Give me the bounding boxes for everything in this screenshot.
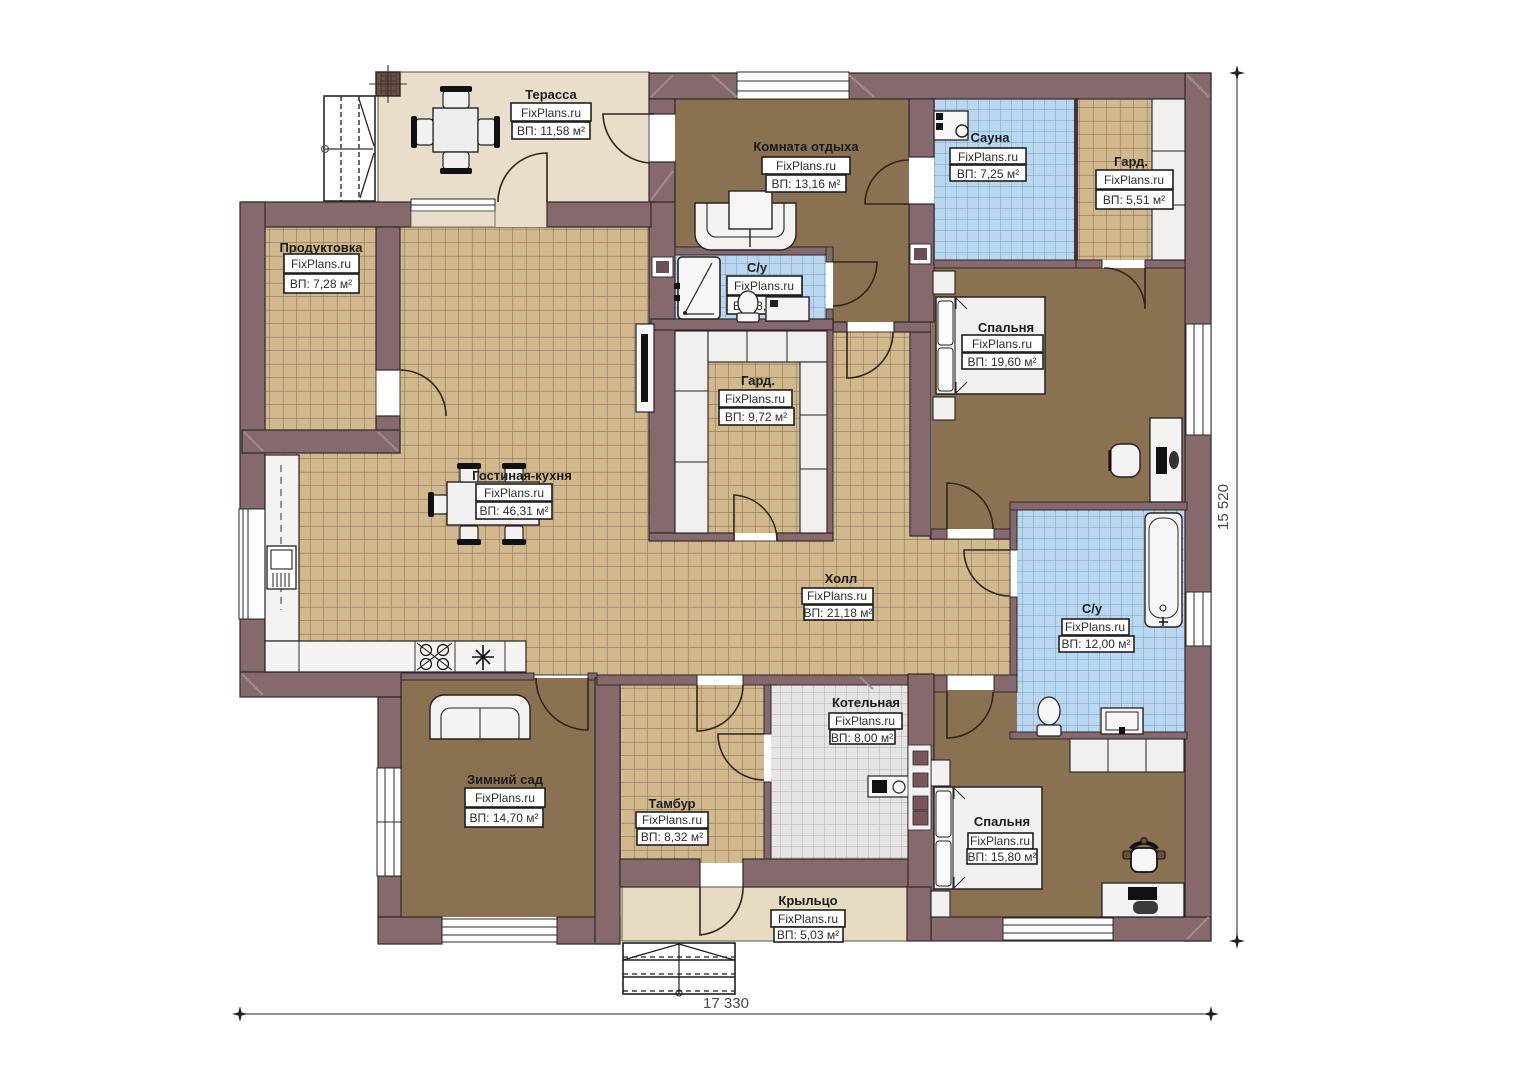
svg-text:FixPlans.ru: FixPlans.ru — [484, 486, 544, 500]
svg-text:FixPlans.ru: FixPlans.ru — [807, 589, 867, 603]
svg-text:Комната отдыха: Комната отдыха — [753, 139, 859, 154]
svg-text:FixPlans.ru: FixPlans.ru — [970, 834, 1030, 848]
svg-text:ВП: 46,31 м²: ВП: 46,31 м² — [480, 504, 549, 518]
svg-text:FixPlans.ru: FixPlans.ru — [734, 279, 794, 293]
svg-text:ВП: 8,00 м²: ВП: 8,00 м² — [831, 731, 893, 745]
svg-text:FixPlans.ru: FixPlans.ru — [1065, 620, 1125, 634]
svg-text:ВП: 7,25 м²: ВП: 7,25 м² — [957, 167, 1019, 181]
svg-text:С/у: С/у — [1082, 601, 1103, 616]
svg-text:Сауна: Сауна — [970, 130, 1010, 145]
svg-text:С/у: С/у — [747, 260, 768, 275]
svg-text:Котельная: Котельная — [832, 695, 900, 710]
svg-text:ВП: 19,60 м²: ВП: 19,60 м² — [968, 355, 1037, 369]
svg-text:ВП: 11,58 м²: ВП: 11,58 м² — [517, 124, 585, 138]
svg-text:Зимний сад: Зимний сад — [467, 772, 544, 787]
svg-text:FixPlans.ru: FixPlans.ru — [642, 813, 702, 827]
svg-text:ВП: 12,00 м²: ВП: 12,00 м² — [1062, 637, 1131, 651]
svg-text:FixPlans.ru: FixPlans.ru — [972, 337, 1032, 351]
svg-text:Спальня: Спальня — [974, 814, 1030, 829]
svg-text:FixPlans.ru: FixPlans.ru — [835, 714, 895, 728]
svg-text:FixPlans.ru: FixPlans.ru — [725, 392, 785, 406]
svg-text:15 520: 15 520 — [1215, 484, 1232, 530]
svg-text:Продуктовка: Продуктовка — [279, 240, 363, 255]
svg-text:Холл: Холл — [825, 571, 858, 586]
svg-text:ВП: 15,80 м²: ВП: 15,80 м² — [968, 850, 1037, 864]
svg-text:FixPlans.ru: FixPlans.ru — [778, 912, 838, 926]
svg-text:Гостиная-кухня: Гостиная-кухня — [472, 468, 572, 483]
svg-text:ВП: 14,70 м²: ВП: 14,70 м² — [470, 811, 539, 825]
svg-text:ВП: 8,32 м²: ВП: 8,32 м² — [641, 830, 703, 844]
svg-text:Тамбур: Тамбур — [648, 796, 695, 811]
svg-text:Спальня: Спальня — [978, 320, 1034, 335]
svg-text:ВП: 9,72 м²: ВП: 9,72 м² — [725, 410, 787, 424]
svg-text:FixPlans.ru: FixPlans.ru — [521, 106, 581, 120]
svg-text:ВП: 5,03 м²: ВП: 5,03 м² — [777, 928, 839, 942]
svg-text:Терасса: Терасса — [525, 87, 577, 102]
svg-text:ВП: 13,16 м²: ВП: 13,16 м² — [772, 177, 841, 191]
svg-text:FixPlans.ru: FixPlans.ru — [958, 150, 1018, 164]
svg-text:FixPlans.ru: FixPlans.ru — [475, 791, 535, 805]
svg-text:Гард.: Гард. — [741, 373, 775, 388]
svg-text:FixPlans.ru: FixPlans.ru — [1104, 173, 1164, 187]
svg-text:ВП: 21,18 м²: ВП: 21,18 м² — [804, 606, 873, 620]
svg-text:ВП: 5,51 м²: ВП: 5,51 м² — [1103, 193, 1165, 207]
svg-text:Крыльцо: Крыльцо — [778, 893, 837, 908]
svg-text:FixPlans.ru: FixPlans.ru — [776, 159, 836, 173]
svg-text:FixPlans.ru: FixPlans.ru — [291, 257, 351, 271]
svg-text:ВП: 7,28 м²: ВП: 7,28 м² — [290, 277, 352, 291]
svg-text:17 330: 17 330 — [703, 995, 749, 1012]
svg-text:Гард.: Гард. — [1114, 154, 1148, 169]
